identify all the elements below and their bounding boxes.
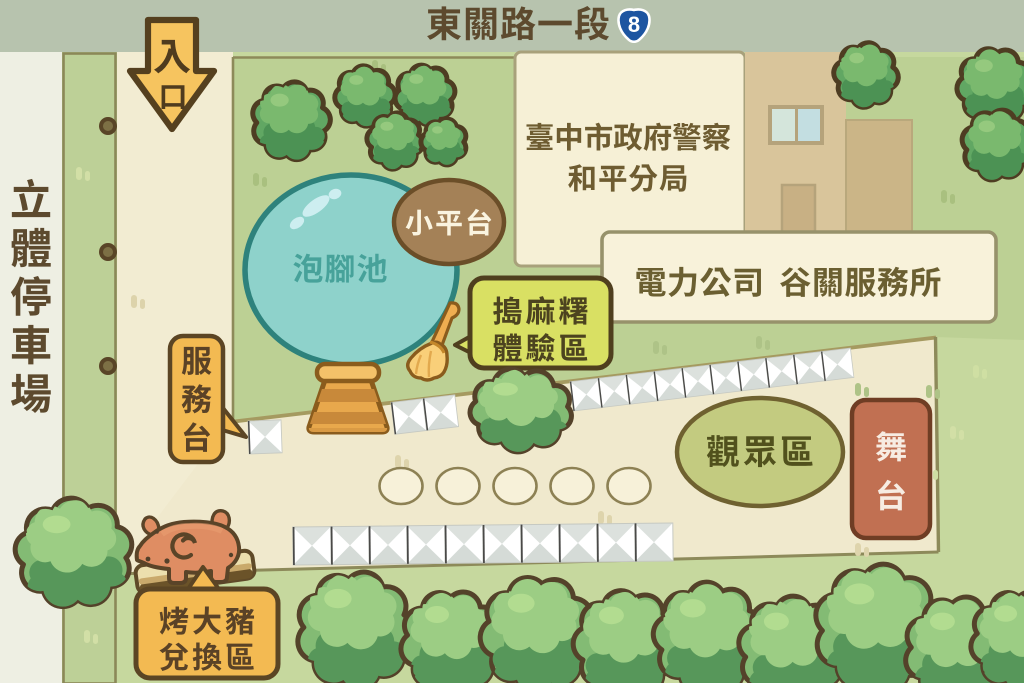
svg-text:8: 8 [628,12,640,37]
